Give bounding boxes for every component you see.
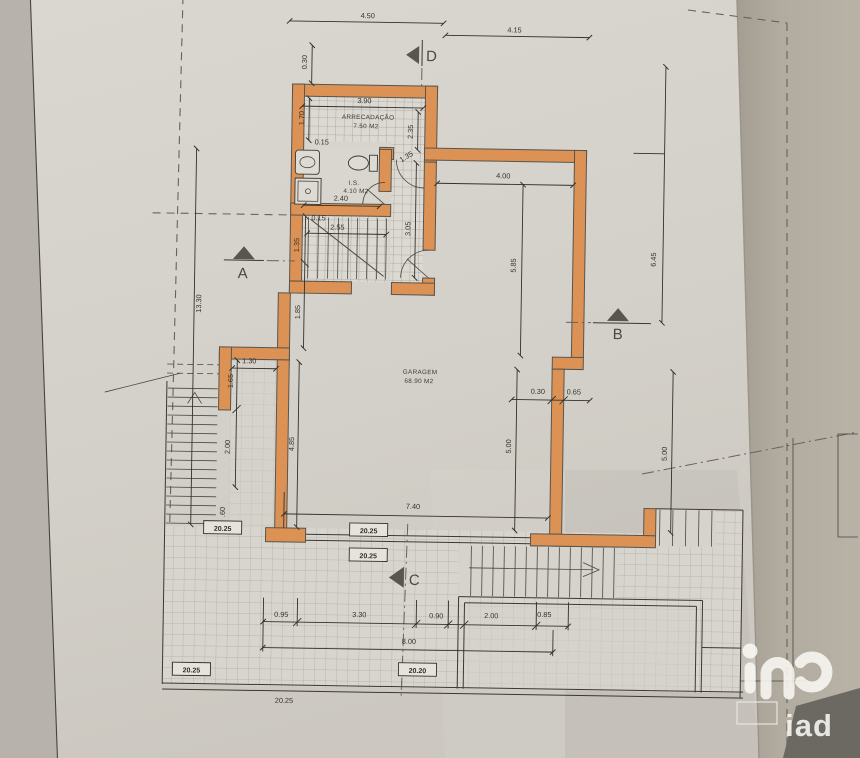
room-area-storage: 7.50 M2: [353, 123, 378, 130]
iad-logo-text: iad: [785, 708, 833, 743]
section-label-b: B: [613, 326, 623, 343]
dim-label: 2.40: [334, 194, 348, 203]
dim-label: 2.00: [484, 611, 498, 620]
level-badge: 20.25: [359, 553, 377, 560]
room-area-garage: 68.90 M2: [404, 378, 433, 385]
dim-label: .60: [218, 507, 227, 517]
toilet-tank-icon: [369, 155, 377, 171]
section-label-d: D: [426, 48, 437, 65]
dim-label: 3.90: [357, 96, 371, 105]
dim-label: 13.30: [194, 294, 203, 312]
level-badge: 20.25: [214, 526, 232, 533]
dim-label: 4.00: [496, 171, 510, 180]
dim-label: 2.35: [406, 125, 415, 139]
dim-label: 1.65: [226, 374, 235, 388]
dim-label: 5.85: [509, 258, 518, 272]
room-label-garage: GARAGEM: [403, 369, 438, 377]
dim-label: 1.35: [292, 238, 301, 252]
dim-label: 1.85: [293, 305, 302, 319]
room-area-bathroom: 4.10 M2: [343, 188, 368, 195]
toilet-icon: [348, 156, 368, 170]
shower-tray-icon: [295, 178, 321, 204]
dim-label: 2.00: [223, 440, 232, 454]
dim-label: 4.85: [287, 437, 296, 451]
dim-label: 0.95: [274, 610, 288, 619]
dim-label: 1.70: [297, 111, 306, 125]
floor-plan-drawing: D A B C: [0, 0, 860, 758]
section-label-c: C: [409, 572, 420, 589]
dim-label: 3.05: [403, 222, 412, 236]
dim-label: 3.30: [352, 610, 366, 619]
level-badge: 20.25: [360, 528, 378, 535]
dim-label: 8.00: [402, 637, 416, 646]
dim-label: 20.25: [275, 696, 293, 705]
dim-label: 0.65: [567, 387, 581, 396]
dim-label: 0.30: [531, 387, 545, 396]
dim-label: 4.15: [507, 25, 521, 34]
room-label-bathroom: I.S.: [349, 180, 360, 187]
dim-label: 5.00: [504, 439, 513, 453]
sink-icon: [295, 150, 319, 174]
dim-label: 0.85: [537, 610, 551, 619]
dim-label: 0.30: [300, 55, 309, 69]
dim-label: 2.55: [330, 223, 344, 232]
level-badge: 20.20: [409, 668, 427, 675]
dim-label: 6.45: [649, 252, 658, 266]
scanned-floor-plan-photo: D A B C: [0, 0, 860, 758]
dim-label: 0.15: [315, 137, 329, 146]
dim-label: 5.00: [660, 447, 669, 461]
level-badge: 20.25: [183, 667, 201, 674]
dim-label: 0.90: [429, 611, 443, 620]
section-label-a: A: [238, 265, 248, 282]
dim-label: 0.15: [311, 213, 325, 222]
dim-label: 1.30: [242, 356, 256, 365]
dim-label: 7.40: [406, 502, 420, 511]
dim-label: 4.50: [361, 11, 375, 20]
